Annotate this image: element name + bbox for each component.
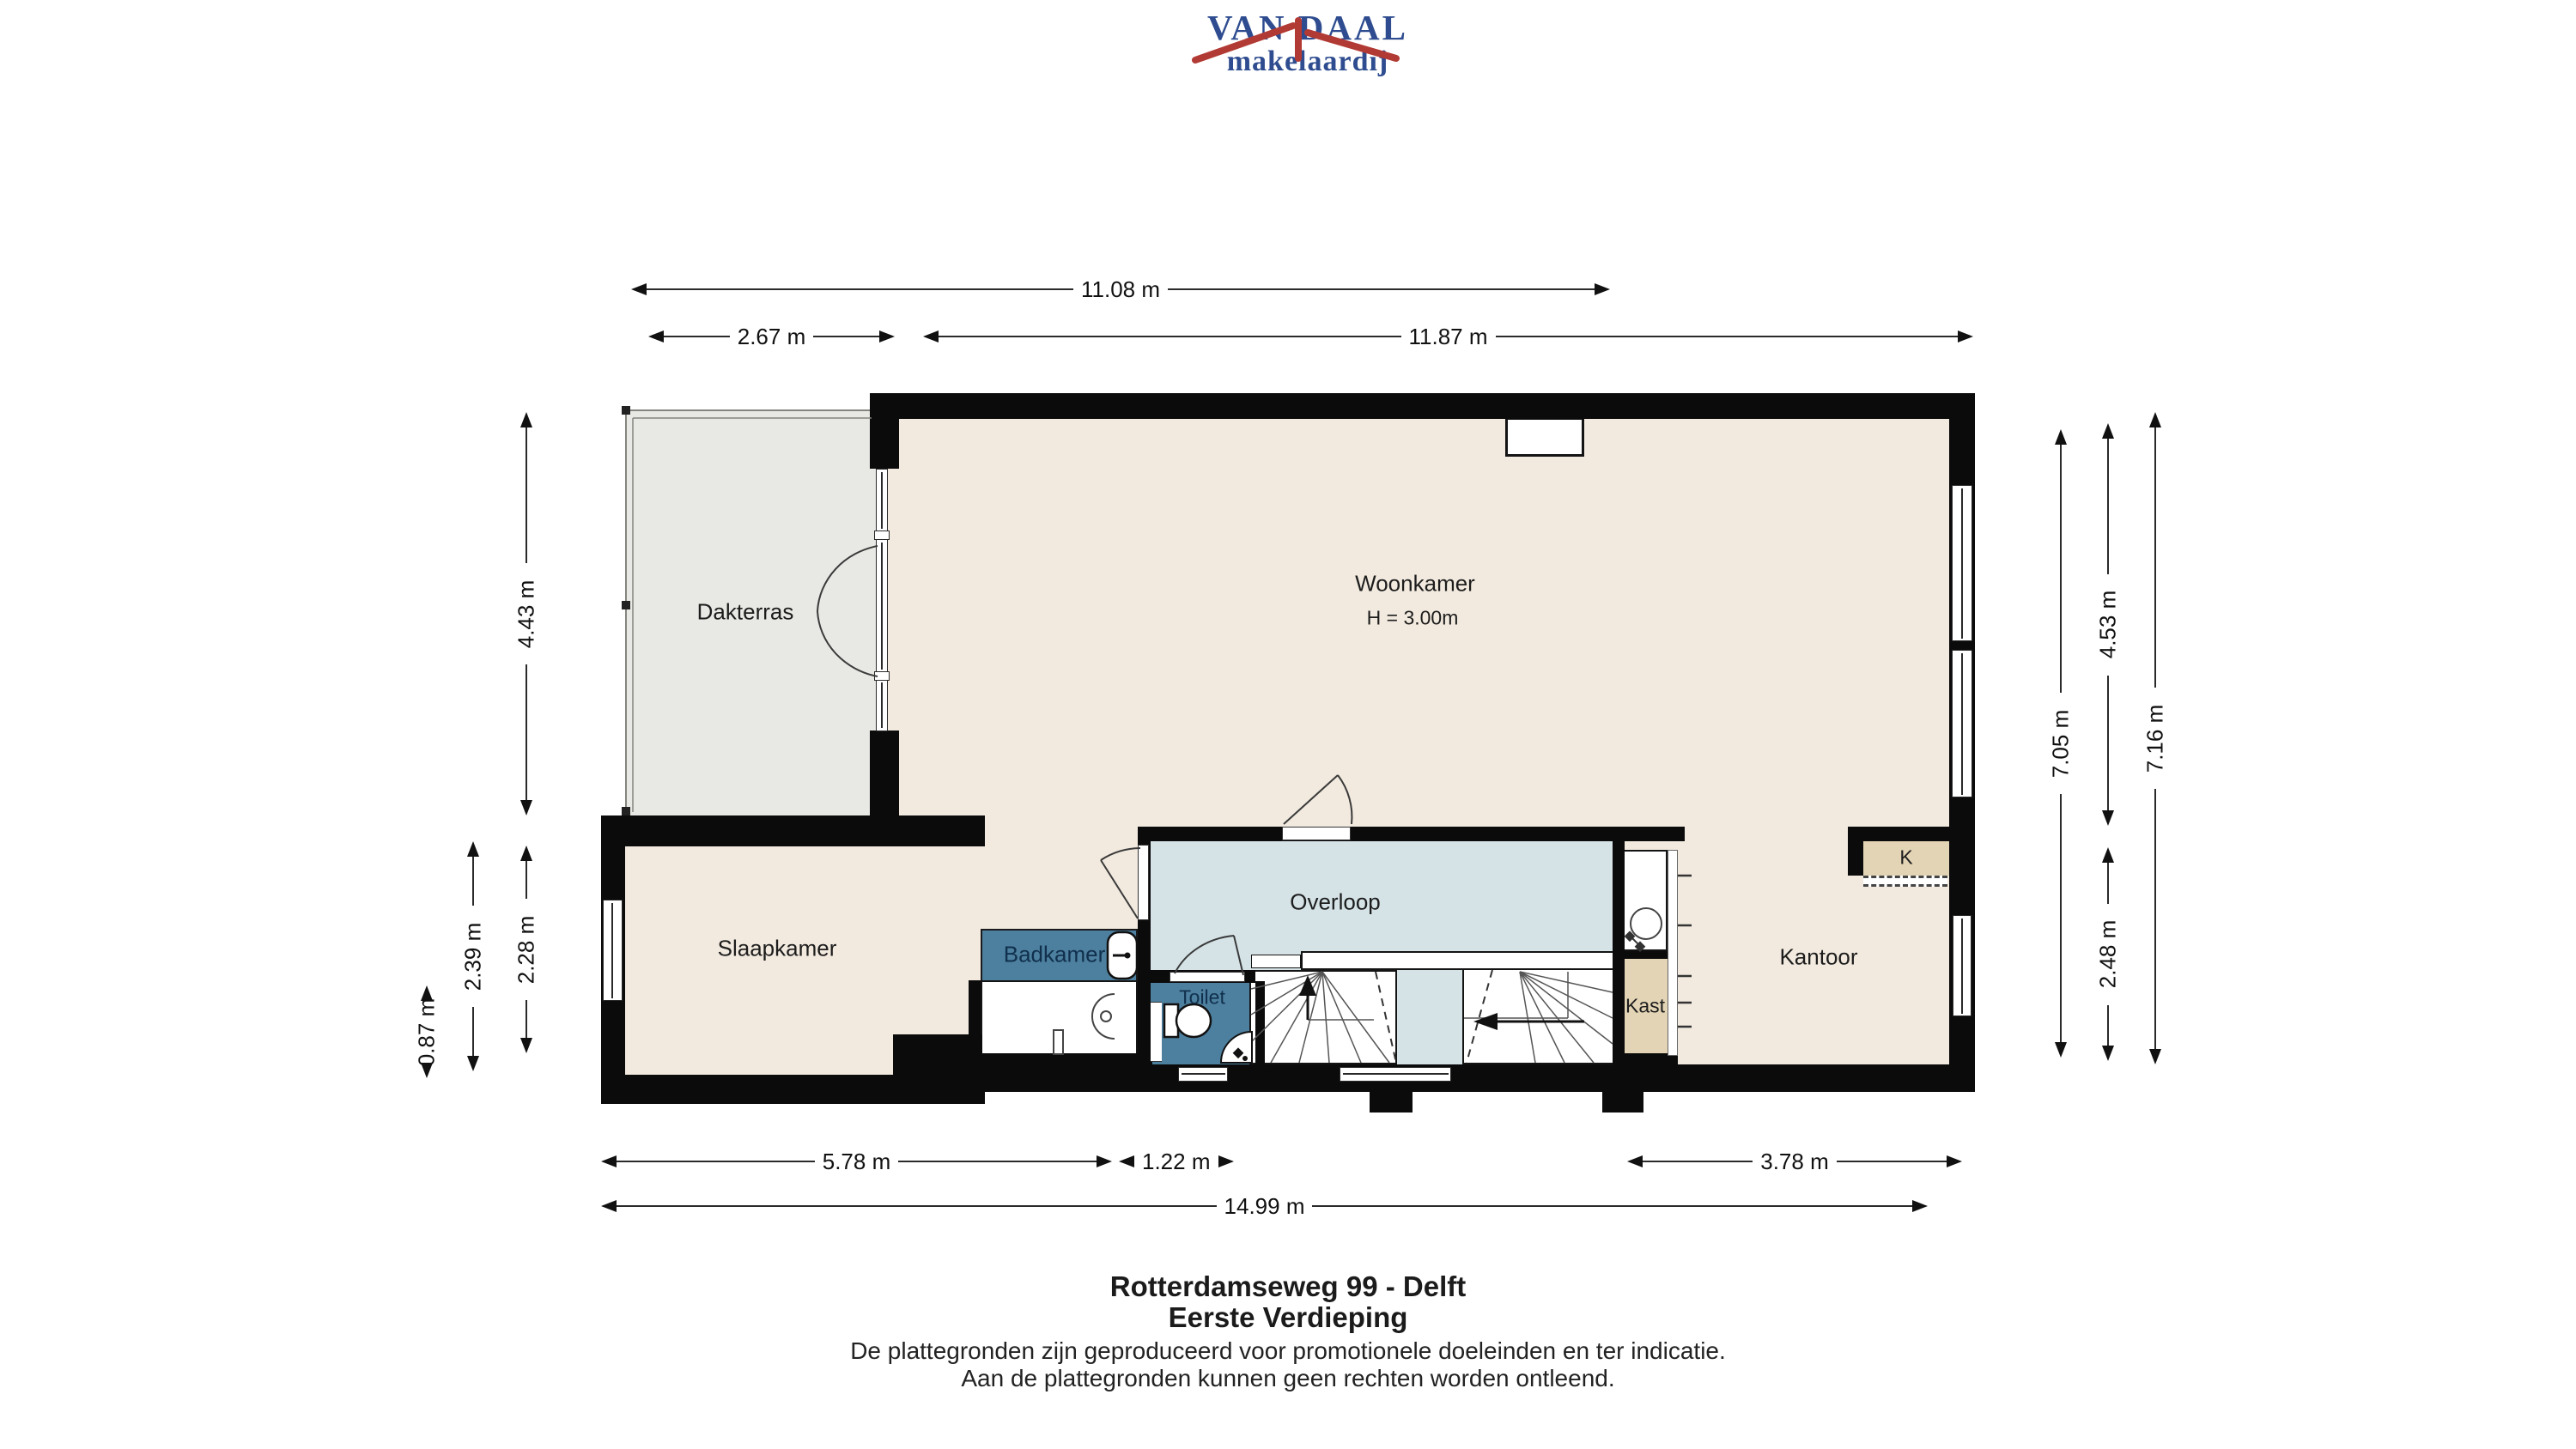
dim-top-total: 11.08 m <box>631 281 1610 298</box>
radiator-icon <box>1054 1030 1063 1054</box>
window-mullions <box>612 472 1962 1074</box>
label-slaapkamer: Slaapkamer <box>718 936 837 962</box>
toilet-bowl-icon <box>1164 1004 1211 1037</box>
washbasin-icon <box>1092 994 1115 1039</box>
dim-left-inner: 2.28 m <box>518 846 535 1053</box>
label-badkamer: Badkamer <box>1004 942 1106 968</box>
dim-right-upper: 4.53 m <box>2099 423 2117 826</box>
dim-bottom-total: 14.99 m <box>601 1197 1928 1215</box>
toilet-door-arc <box>1175 936 1234 973</box>
dim-right-lower: 2.48 m <box>2099 847 2117 1061</box>
dim-bottom-mid: 1.22 m <box>1119 1153 1232 1170</box>
door-arcs <box>817 546 1352 975</box>
footer-disclaimer-2: Aan de plattegronden kunnen geen rechten… <box>0 1365 2576 1392</box>
landing-door-arc <box>1338 775 1352 824</box>
dim-bottom-left: 5.78 m <box>601 1153 1112 1170</box>
footer-address: Rotterdamseweg 99 - Delft <box>0 1270 2576 1303</box>
corner-basin-icon <box>1221 1032 1252 1063</box>
dim-left-small: 0.87 m <box>418 985 435 1078</box>
footer-floor: Eerste Verdieping <box>0 1301 2576 1334</box>
bathtub-icon <box>1108 932 1137 979</box>
dim-top-right: 11.87 m <box>923 328 1973 345</box>
stair-left-direction-arrow <box>1299 975 1316 1020</box>
toilet-door-leaf <box>1234 936 1243 975</box>
dim-bottom-right: 3.78 m <box>1627 1153 1962 1170</box>
label-toilet: Toilet <box>1179 986 1225 1009</box>
dim-left-terrace: 4.43 m <box>518 412 535 815</box>
bathroom-door-arc <box>1101 848 1140 860</box>
railing-joints <box>622 406 630 815</box>
label-k-closet: K <box>1899 846 1912 870</box>
dim-left-outer: 2.39 m <box>465 841 482 1071</box>
kast-door-ticks <box>1678 876 1692 1027</box>
stair-left-treads <box>1251 972 1389 1063</box>
dim-right-inner-total: 7.05 m <box>2052 429 2069 1058</box>
dim-top-left: 2.67 m <box>648 328 895 345</box>
label-kantoor: Kantoor <box>1779 944 1857 971</box>
landing-door-leaf <box>1284 775 1338 824</box>
floorplan-page: { "logo": { "name": "VAN DAAL", "tagline… <box>0 0 2576 1449</box>
label-kast: Kast <box>1625 995 1665 1018</box>
label-dakterras: Dakterras <box>697 599 794 626</box>
label-woonkamer: Woonkamer <box>1355 571 1475 597</box>
bathroom-door-leaf <box>1101 860 1138 919</box>
label-woonkamer-height: H = 3.00m <box>1367 607 1459 630</box>
boiler-icon <box>1625 908 1662 952</box>
terrace-door-arc-bottom <box>817 611 878 676</box>
dim-right-total: 7.16 m <box>2147 412 2164 1064</box>
plan-linework <box>0 0 2576 1449</box>
footer-disclaimer-1: De plattegronden zijn geproduceerd voor … <box>0 1337 2576 1365</box>
terrace-door-arc-top <box>817 546 878 611</box>
label-overloop: Overloop <box>1290 889 1381 916</box>
